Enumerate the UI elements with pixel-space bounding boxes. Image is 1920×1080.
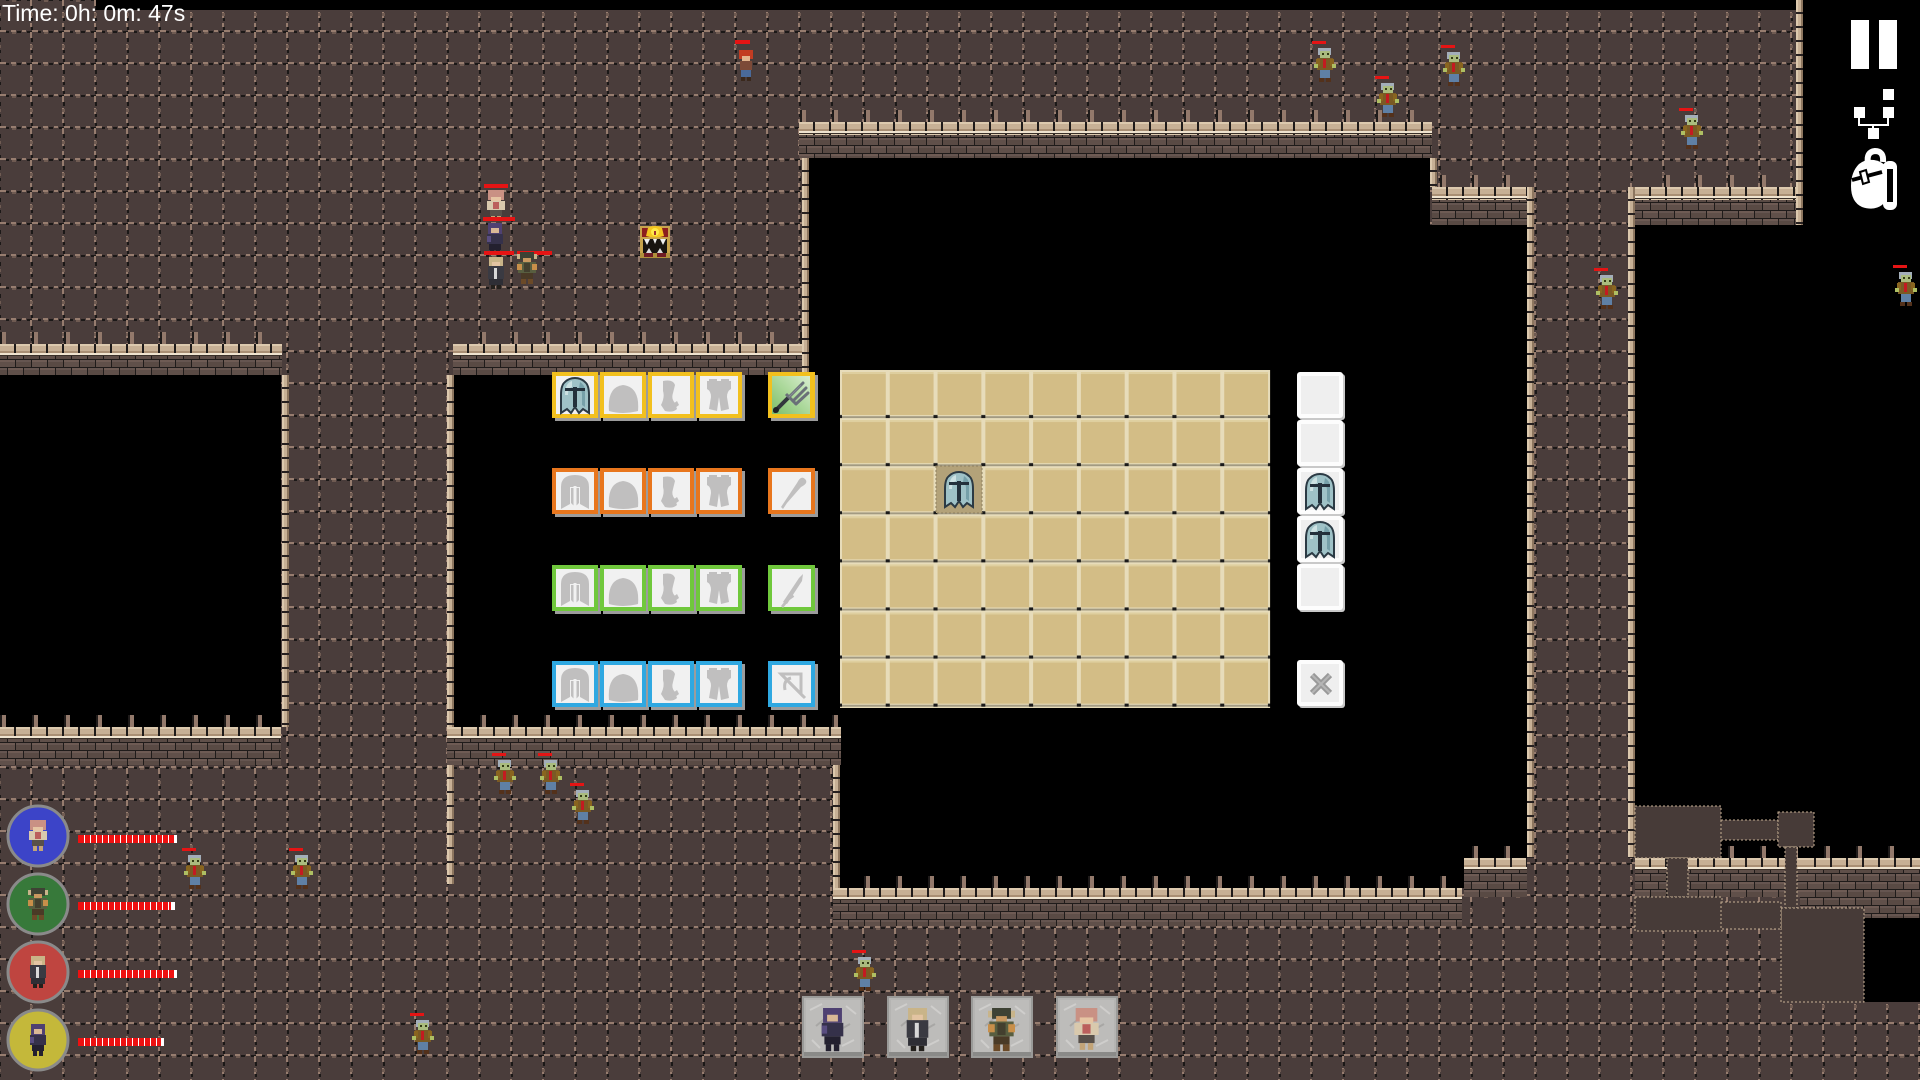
- svg-text:Time: 0h: 0m: 47s: Time: 0h: 0m: 47s: [2, 0, 185, 26]
